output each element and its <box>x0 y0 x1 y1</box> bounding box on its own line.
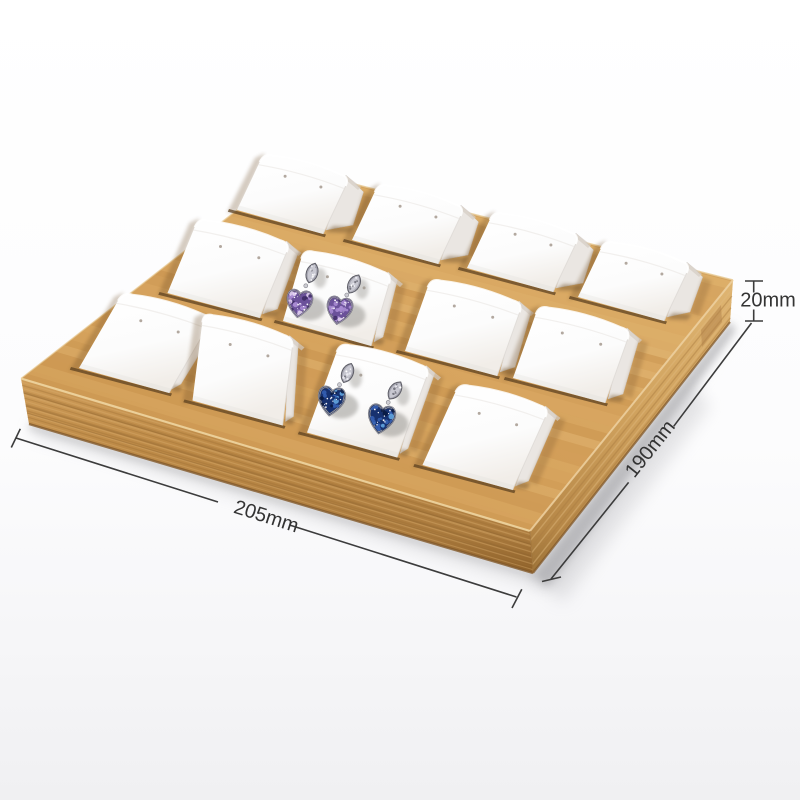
svg-text:20mm: 20mm <box>740 289 796 311</box>
